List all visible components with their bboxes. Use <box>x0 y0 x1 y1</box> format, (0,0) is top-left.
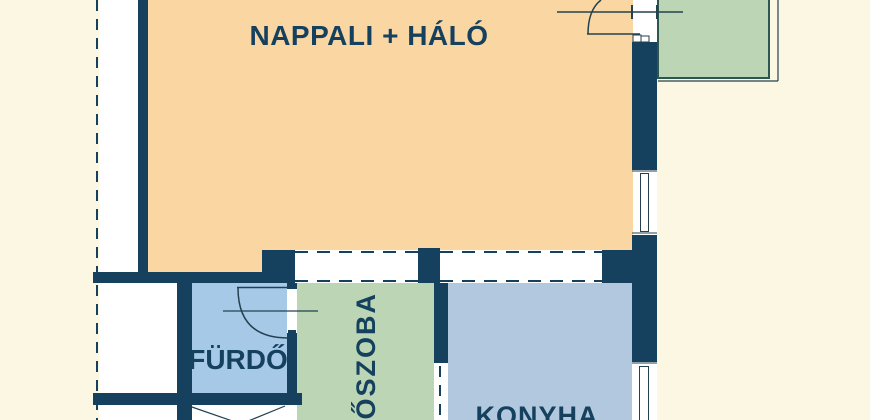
room-label-bathroom: FÜRDŐ <box>188 345 288 376</box>
floor-plan: NAPPALI + HÁLÓ FÜRDŐ KONYHA ELŐSZOBA <box>0 0 870 420</box>
bathroom-lower-door-chevron-icon <box>189 406 285 420</box>
room-label-kitchen: KONYHA <box>475 402 598 420</box>
plan-linework <box>0 0 870 420</box>
window-sill-lines <box>632 171 657 363</box>
balcony-door-swing-icon <box>557 0 683 42</box>
room-label-hallway: ELŐSZOBA <box>352 292 382 420</box>
bathroom-door-swing-icon <box>223 286 318 338</box>
wall-opening-dashes <box>295 252 602 420</box>
room-label-living-bedroom: NAPPALI + HÁLÓ <box>249 21 488 52</box>
